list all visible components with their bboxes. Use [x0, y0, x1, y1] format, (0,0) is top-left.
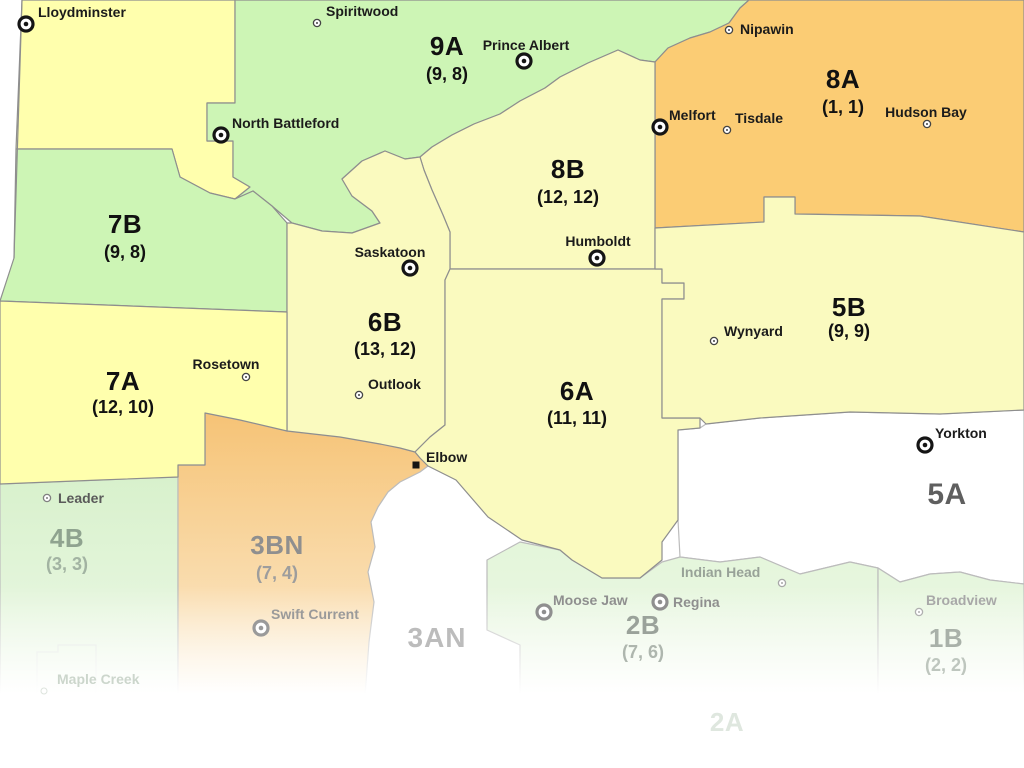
city-marker-outlook	[355, 391, 362, 398]
city-marker-regina	[653, 595, 667, 609]
district-map-svg	[0, 0, 1024, 768]
city-marker-moose-jaw	[537, 605, 551, 619]
region-shape-5a	[678, 410, 1024, 584]
city-marker-wynyard	[710, 337, 717, 344]
city-marker-tisdale	[723, 126, 730, 133]
city-marker-hudson-bay	[923, 120, 930, 127]
city-marker-rosetown	[242, 373, 249, 380]
city-marker-spiritwood	[313, 19, 320, 26]
city-marker-lloydminster	[19, 17, 33, 31]
city-marker-north-battleford	[214, 128, 228, 142]
city-marker-maple-creek	[41, 688, 47, 694]
city-marker-yorkton	[918, 438, 932, 452]
region-shape-8a	[655, 0, 1024, 232]
city-marker-indian-head	[778, 579, 785, 586]
map-canvas: 9A(9, 8)8A(1, 1)8B(12, 12)7B(9, 8)7A(12,…	[0, 0, 1024, 768]
city-marker-saskatoon	[403, 261, 417, 275]
city-marker-leader	[43, 494, 50, 501]
city-marker-broadview	[915, 608, 922, 615]
city-marker-elbow	[413, 462, 420, 469]
region-shape-5b	[655, 197, 1024, 424]
city-marker-humboldt	[590, 251, 604, 265]
city-marker-prince-albert	[517, 54, 531, 68]
city-marker-nipawin	[725, 26, 732, 33]
region-shape-6a	[415, 269, 700, 578]
city-marker-melfort	[653, 120, 667, 134]
bottom-white-band	[0, 693, 1024, 768]
city-marker-swift-current	[254, 621, 268, 635]
bottom-fade	[0, 586, 1024, 694]
